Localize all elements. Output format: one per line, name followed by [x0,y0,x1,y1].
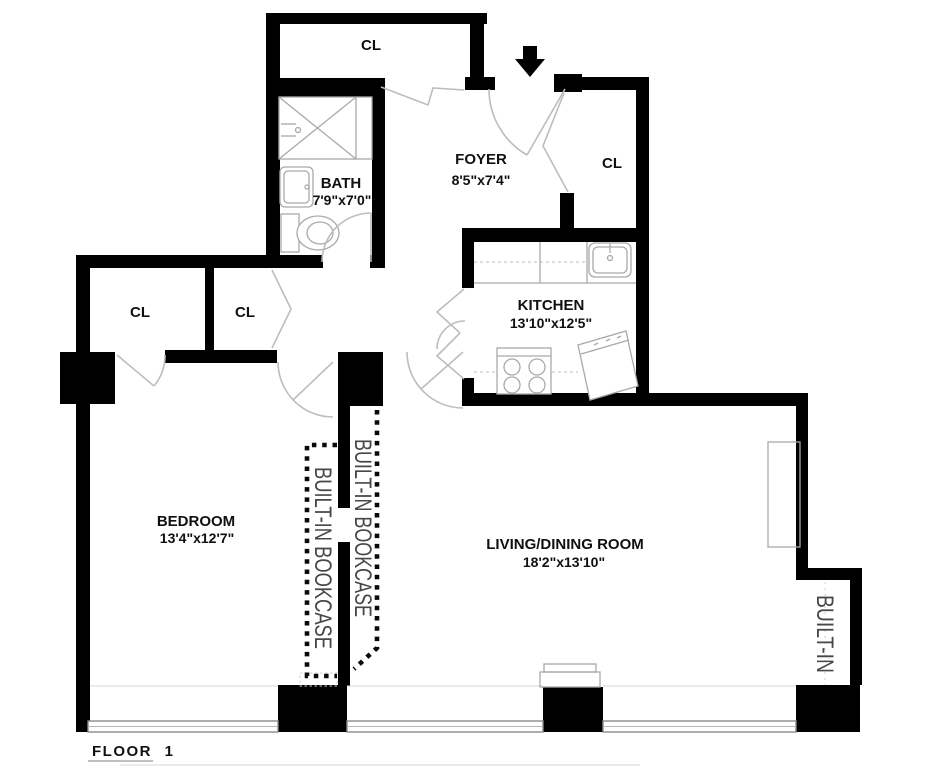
walls [60,13,862,732]
windows [88,686,796,765]
closet-hall-right-label: CL [235,304,255,321]
closet-hall-left-door-leaf [117,355,154,386]
bedroom-dims: 13'4"x12'7" [160,530,234,546]
radiator [768,442,800,547]
bedroom-label: BEDROOM [157,513,235,530]
wall-segment [372,95,385,267]
wall-segment [266,78,385,97]
foyer-label: FOYER [455,151,507,168]
wall-segment [338,404,350,508]
wall-pillar [796,685,860,732]
wall-segment [76,255,90,732]
floor-title: FLOOR 1 [92,743,175,760]
wall-segment [76,255,323,268]
refrigerator [578,331,638,400]
wall-segment [462,228,474,288]
closet-hall-right-accordion-door [272,270,291,348]
bathtub [279,97,372,159]
wall-segment [850,568,862,685]
closet-top-label: CL [361,37,381,54]
wall-segment [462,228,648,242]
bedroom-door-leaf [293,362,333,400]
closet-foyer-label: CL [602,155,622,172]
living-dining-dims: 18'2"x13'10" [523,554,605,570]
wall-segment [338,542,350,686]
kitchen-bifold-door [437,289,464,333]
wall-pillar [338,352,383,406]
wall-pillar [543,687,603,732]
living-room-door-leaf [421,352,463,389]
wall-segment [462,393,808,406]
wall-segment [266,13,487,24]
kitchen-dims: 13'10"x12'5" [510,315,592,331]
entry-door-leaf [527,89,565,155]
wall-segment [205,268,214,352]
closet-foyer-accordion-door [543,93,568,192]
entry-door-arc [489,89,527,155]
bookcase-bedroom-label: BUILT-IN BOOKCASE [309,467,336,649]
floor-plan-canvas: CL BATH 7'9"x7'0" FOYER 8'5"x7'4" CL KIT… [0,0,934,768]
wall-segment [266,13,280,267]
toilet-tank [281,214,299,252]
wall-segment [470,13,484,79]
closet-top-bifold-door [381,87,464,105]
bookcase-living-label: BUILT-IN BOOKCASE [349,439,376,617]
bath-label: BATH [321,175,362,192]
wall-segment [465,77,495,90]
ac-unit [540,672,600,687]
ac-unit-top [544,664,596,672]
wall-pillar [278,685,347,732]
living-dining-label: LIVING/DINING ROOM [486,536,644,553]
floor-plan: CL BATH 7'9"x7'0" FOYER 8'5"x7'4" CL KIT… [0,0,934,768]
kitchen-label: KITCHEN [518,297,585,314]
built-in-niche-label: BUILT-IN [811,595,838,673]
kitchen-door-arc [437,321,465,349]
wall-segment [370,255,385,268]
wall-segment [561,77,648,90]
wall-segment [165,350,277,363]
bath-dims: 7'9"x7'0" [313,192,372,208]
foyer-dims: 8'5"x7'4" [452,172,511,188]
wall-pillar [60,352,115,404]
closet-hall-left-door-arc [154,355,165,386]
entry-arrow-icon [515,46,545,77]
closet-hall-left-label: CL [130,304,150,321]
